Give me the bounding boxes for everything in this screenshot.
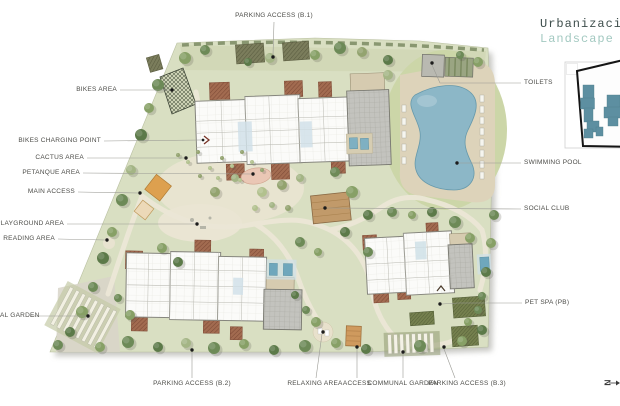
- location-inset-map: [565, 57, 620, 148]
- label-al-garden: AL GARDEN: [0, 313, 40, 320]
- plan-title-line2: Landscape: [540, 32, 620, 47]
- plan-title-line1: Urbanizaci: [540, 17, 620, 32]
- label-social-club: SOCIAL CLUB: [524, 206, 570, 213]
- label-bikes-charging: BIKES CHARGING POINT: [18, 138, 101, 145]
- label-parking-access-b2: PARKING ACCESS (B.2): [153, 381, 231, 388]
- label-toilets: TOILETS: [524, 80, 553, 87]
- access-shed: [346, 326, 362, 347]
- plan-title: Urbanizaci Landscape: [540, 17, 620, 47]
- wading-pool: [417, 95, 437, 107]
- communal-garden-rows: [384, 331, 441, 357]
- site-plan: N: [0, 0, 620, 406]
- label-relaxing-area: RELAXING AREA: [287, 381, 342, 388]
- north-arrow-icon: N: [603, 380, 620, 386]
- label-petanque-area: PETANQUE AREA: [22, 170, 80, 177]
- label-cactus-area: CACTUS AREA: [35, 155, 84, 162]
- label-pet-spa: PET SPA (PB): [525, 300, 569, 307]
- label-main-access: MAIN ACCESS: [28, 189, 75, 196]
- label-parking-access-b3: PARKING ACCESS (B.3): [428, 381, 506, 388]
- landscape-masterplan-page: { "title": { "line1": "Urbanizaci", "lin…: [0, 0, 620, 406]
- label-playground-area: PLAYGROUND AREA: [0, 221, 64, 228]
- label-parking-access-b1: PARKING ACCESS (B.1): [235, 13, 313, 20]
- svg-text:N: N: [603, 380, 613, 386]
- label-reading-area: READING AREA: [3, 236, 55, 243]
- label-bikes-area: BIKES AREA: [76, 87, 117, 94]
- label-swimming-pool: SWIMMING POOL: [524, 160, 582, 167]
